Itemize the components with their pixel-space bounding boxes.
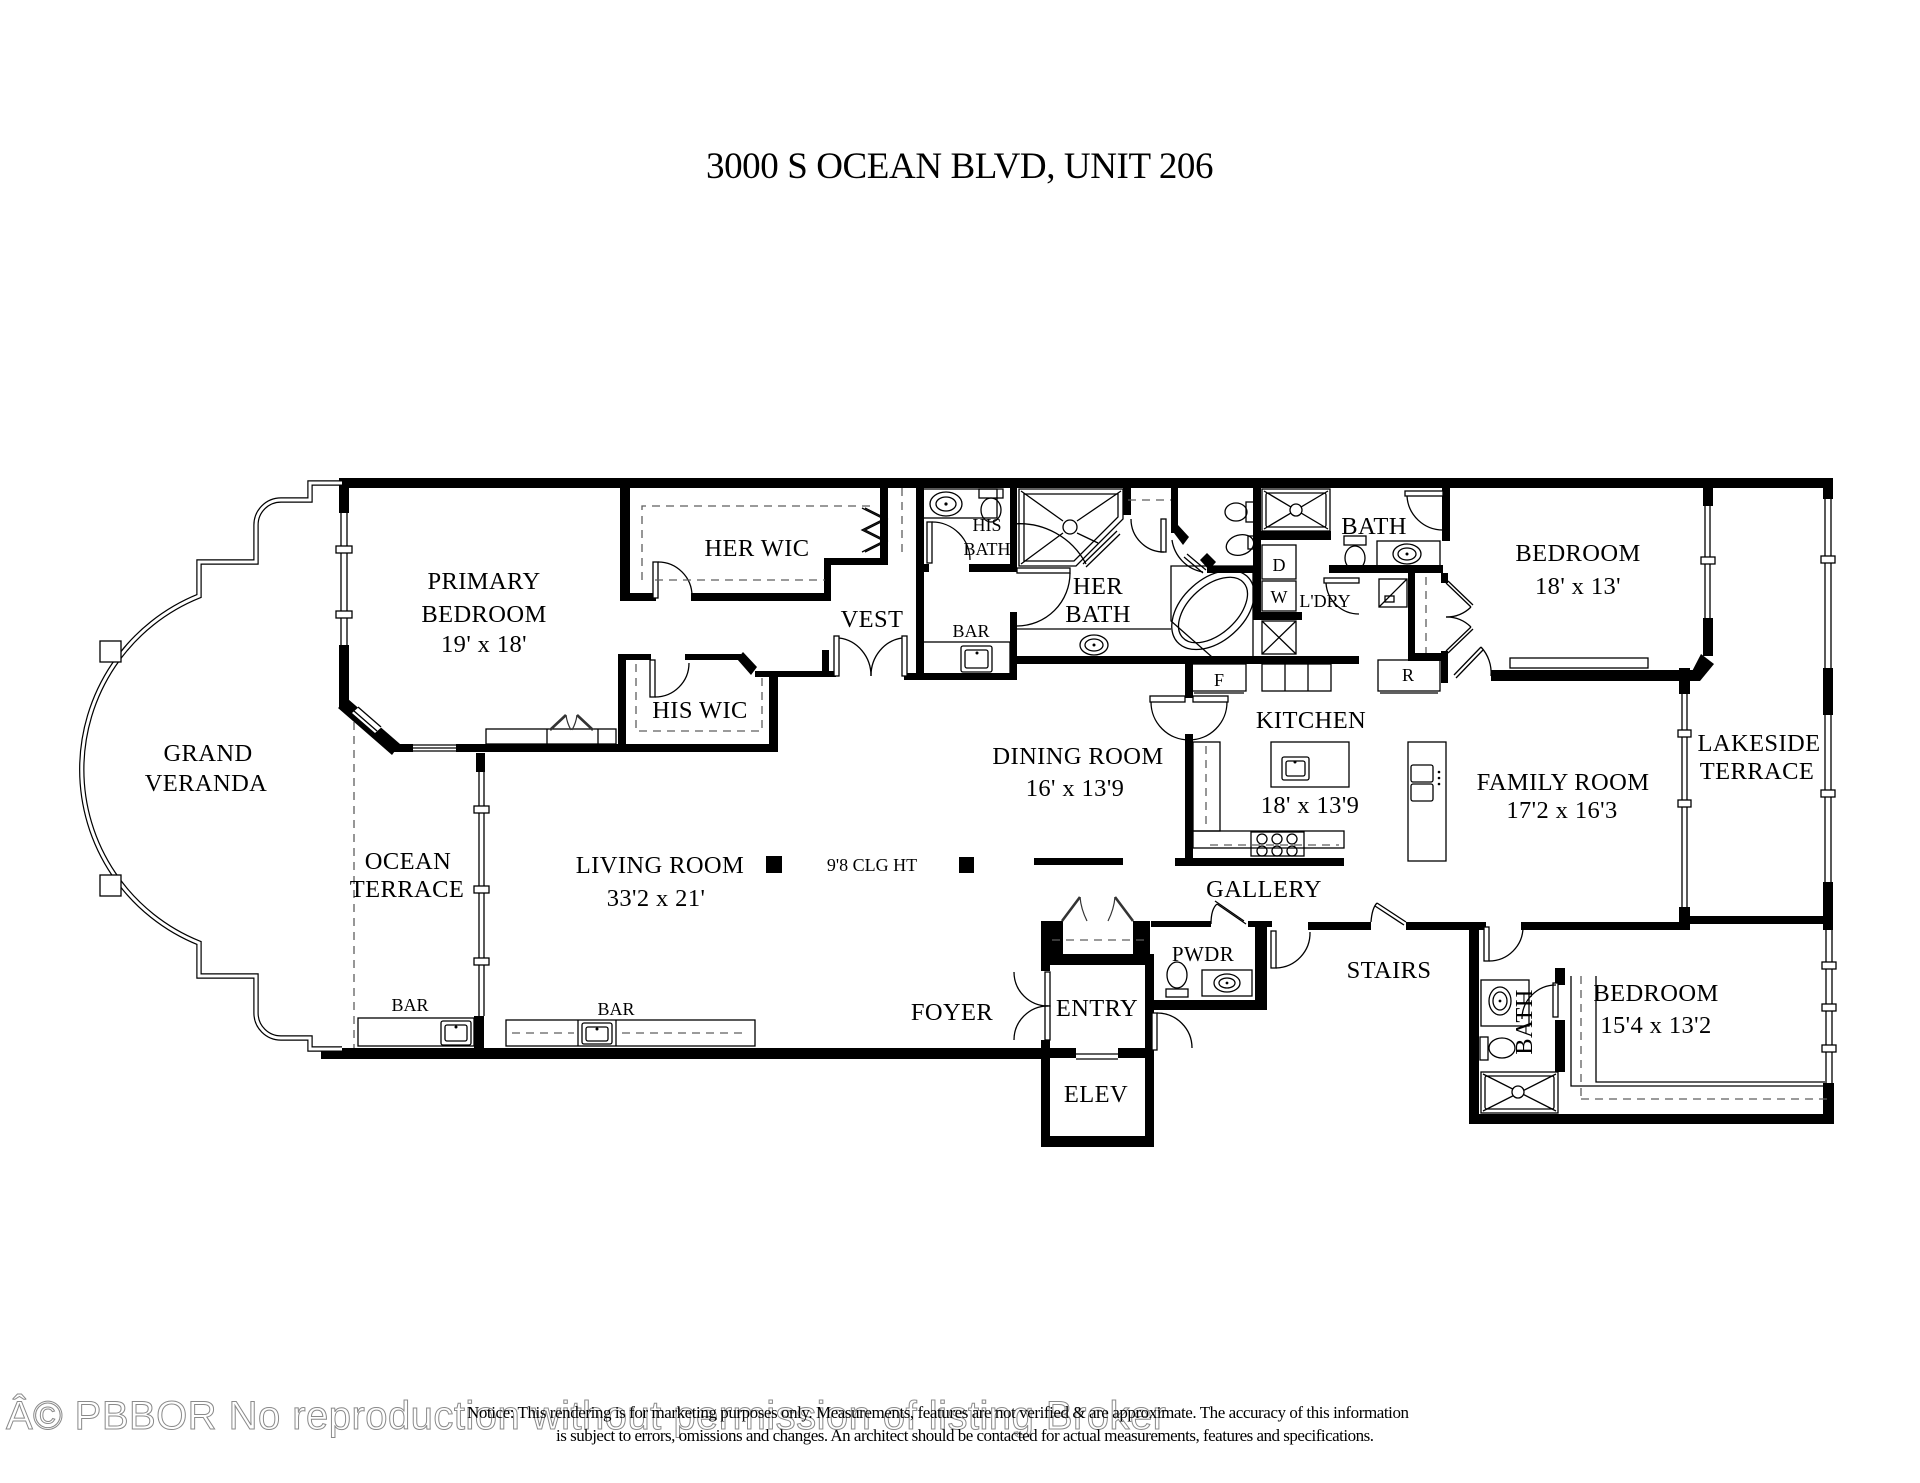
svg-text:FAMILY ROOM: FAMILY ROOM: [1477, 769, 1650, 796]
svg-text:PRIMARY: PRIMARY: [427, 568, 540, 595]
svg-text:STAIRS: STAIRS: [1347, 957, 1432, 984]
svg-text:LAKESIDE: LAKESIDE: [1698, 730, 1821, 757]
svg-text:BEDROOM: BEDROOM: [1593, 980, 1718, 1007]
svg-text:PWDR: PWDR: [1172, 942, 1234, 966]
svg-text:F: F: [1214, 670, 1224, 690]
svg-text:9'8 CLG HT: 9'8 CLG HT: [827, 855, 917, 875]
svg-text:BATH: BATH: [1065, 601, 1131, 628]
svg-text:3000 S OCEAN BLVD, UNIT 206: 3000 S OCEAN BLVD, UNIT 206: [706, 146, 1214, 187]
svg-text:HIS: HIS: [972, 515, 1001, 535]
svg-text:18' x 13'9: 18' x 13'9: [1261, 792, 1360, 819]
svg-text:BATH: BATH: [963, 539, 1010, 559]
svg-text:is subject to errors, omission: is subject to errors, omissions and chan…: [556, 1426, 1374, 1445]
svg-text:DINING ROOM: DINING ROOM: [992, 743, 1163, 770]
svg-text:VERANDA: VERANDA: [145, 770, 268, 797]
svg-text:HER WIC: HER WIC: [704, 535, 809, 562]
svg-text:19' x 18': 19' x 18': [441, 631, 527, 658]
svg-text:BAR: BAR: [952, 621, 989, 641]
svg-text:BEDROOM: BEDROOM: [421, 601, 546, 628]
svg-text:ELEV: ELEV: [1064, 1081, 1128, 1108]
svg-text:BAR: BAR: [597, 999, 634, 1019]
svg-text:BAR: BAR: [391, 995, 428, 1015]
svg-text:VEST: VEST: [841, 606, 904, 633]
svg-text:BATH: BATH: [1511, 989, 1538, 1055]
svg-text:TERRACE: TERRACE: [1700, 758, 1814, 785]
svg-text:R: R: [1402, 665, 1414, 685]
svg-text:BEDROOM: BEDROOM: [1515, 540, 1640, 567]
svg-text:15'4 x 13'2: 15'4 x 13'2: [1600, 1012, 1711, 1039]
svg-text:BATH: BATH: [1341, 513, 1407, 540]
svg-text:TERRACE: TERRACE: [350, 876, 464, 903]
svg-text:HIS WIC: HIS WIC: [652, 697, 748, 724]
svg-text:L'DRY: L'DRY: [1299, 591, 1350, 611]
svg-text:33'2 x 21': 33'2 x 21': [607, 885, 706, 912]
svg-text:LIVING ROOM: LIVING ROOM: [576, 852, 744, 879]
svg-text:18' x 13': 18' x 13': [1535, 573, 1621, 600]
svg-text:HER: HER: [1073, 573, 1123, 600]
svg-text:KITCHEN: KITCHEN: [1256, 707, 1366, 734]
svg-text:W: W: [1271, 587, 1288, 607]
svg-text:OCEAN: OCEAN: [365, 848, 451, 875]
svg-text:Notice: This rendering is for: Notice: This rendering is for marketing …: [467, 1403, 1410, 1422]
svg-text:GRAND: GRAND: [163, 740, 252, 767]
svg-text:GALLERY: GALLERY: [1206, 876, 1322, 903]
svg-text:17'2 x 16'3: 17'2 x 16'3: [1506, 797, 1617, 824]
svg-text:16' x 13'9: 16' x 13'9: [1026, 775, 1125, 802]
svg-text:D: D: [1273, 555, 1286, 575]
svg-text:FOYER: FOYER: [911, 999, 994, 1026]
svg-text:ENTRY: ENTRY: [1056, 995, 1138, 1022]
